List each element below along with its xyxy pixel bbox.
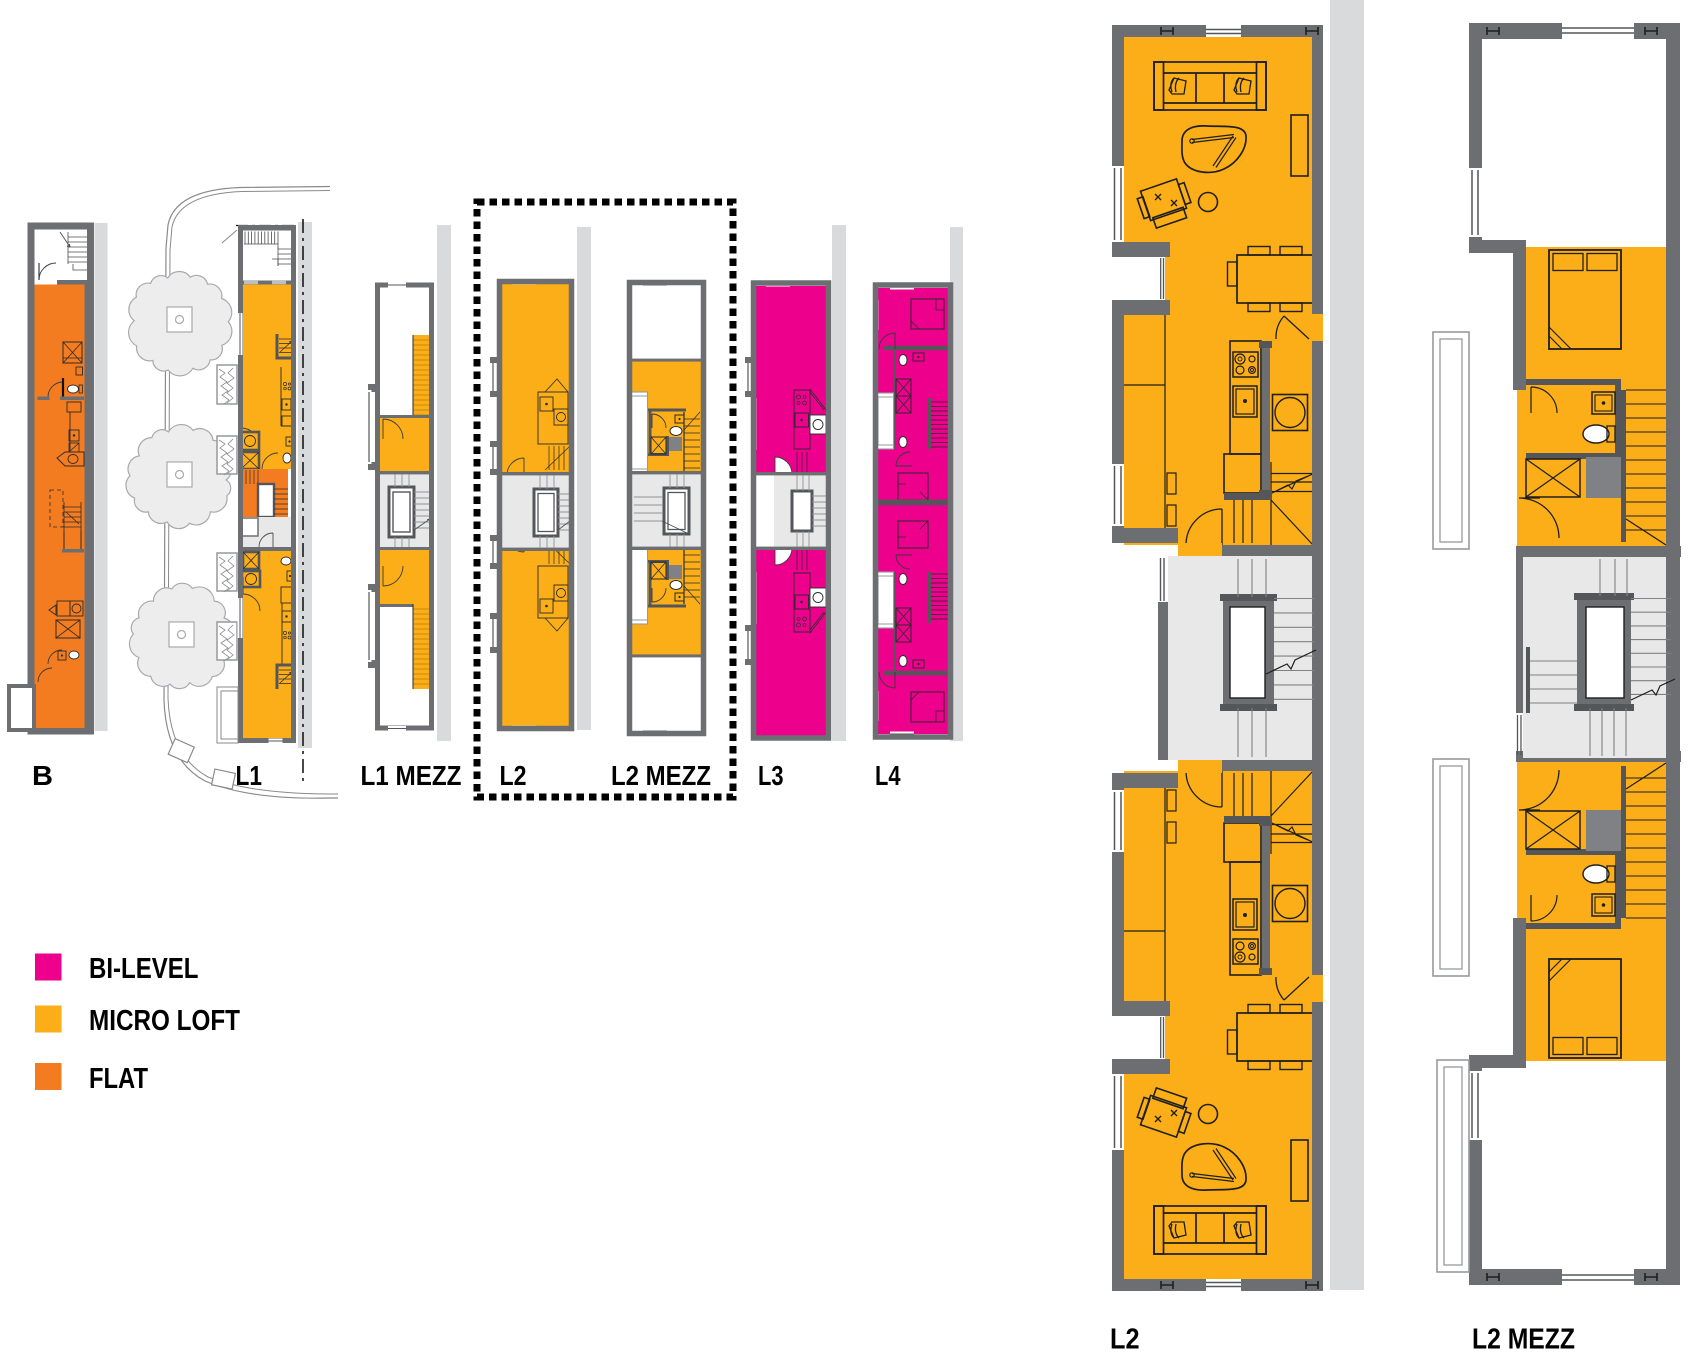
svg-text:MICRO LOFT: MICRO LOFT (89, 1005, 240, 1037)
svg-text:B: B (32, 760, 53, 791)
svg-text:L1 MEZZ: L1 MEZZ (361, 760, 462, 791)
svg-text:L4: L4 (875, 760, 901, 791)
svg-text:FLAT: FLAT (89, 1063, 148, 1095)
svg-text:L2: L2 (500, 760, 527, 791)
svg-text:L2: L2 (1110, 1324, 1140, 1356)
svg-text:L2 MEZZ: L2 MEZZ (1472, 1324, 1575, 1356)
svg-text:L2 MEZZ: L2 MEZZ (611, 760, 711, 791)
svg-text:BI-LEVEL: BI-LEVEL (89, 953, 199, 985)
svg-text:L3: L3 (758, 760, 784, 791)
svg-text:L1: L1 (236, 760, 263, 791)
